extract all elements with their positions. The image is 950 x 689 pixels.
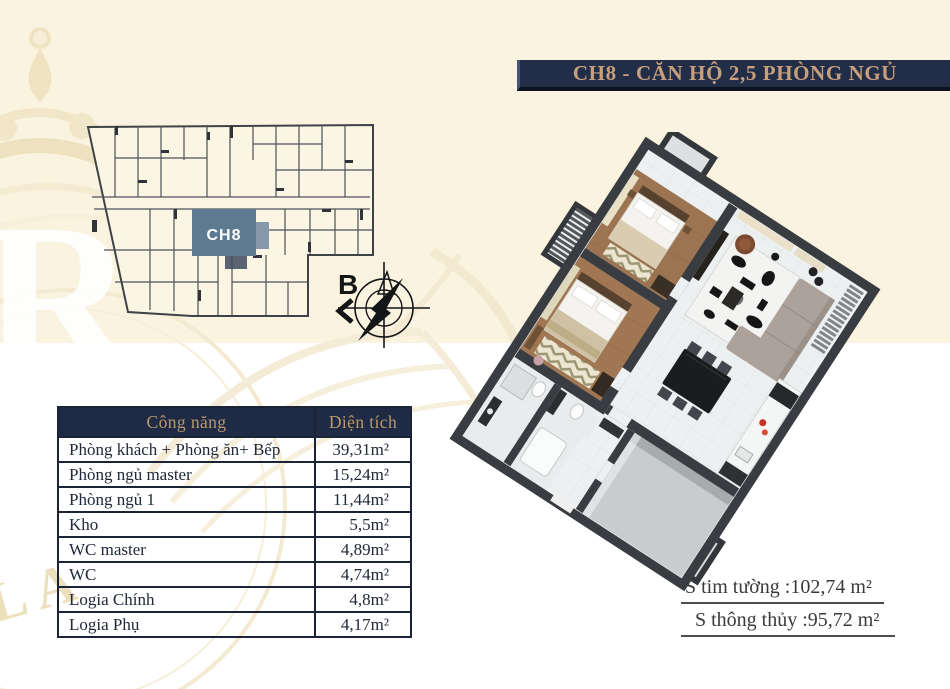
table-row: WC master4,89m² bbox=[58, 537, 411, 562]
room-name-cell: Logia Phụ bbox=[58, 612, 315, 637]
table-row: Phòng ngủ master15,24m² bbox=[58, 462, 411, 487]
title-banner: CH8 - CĂN HỘ 2,5 PHÒNG NGỦ bbox=[517, 60, 950, 91]
room-area-cell: 4,89m² bbox=[315, 537, 411, 562]
brochure-page: R LA CH8 - CĂN HỘ 2,5 PHÒNG NGỦ bbox=[0, 0, 950, 689]
north-arrow-icon bbox=[339, 300, 352, 322]
table-row: Phòng khách + Phòng ăn+ Bếp39,31m² bbox=[58, 437, 411, 462]
room-area-cell: 39,31m² bbox=[315, 437, 411, 462]
room-area-cell: 11,44m² bbox=[315, 487, 411, 512]
area-table-body: Phòng khách + Phòng ăn+ Bếp39,31m²Phòng … bbox=[58, 437, 411, 637]
room-area-cell: 5,5m² bbox=[315, 512, 411, 537]
gross-area-line: S tim tường :102,74 m² bbox=[681, 575, 884, 604]
table-header-row: Công năng Diện tích bbox=[58, 407, 411, 437]
net-area-line: S thông thủy :95,72 m² bbox=[681, 608, 895, 637]
room-name-cell: Phòng ngủ 1 bbox=[58, 487, 315, 512]
room-area-cell: 15,24m² bbox=[315, 462, 411, 487]
table-row: Logia Phụ4,17m² bbox=[58, 612, 411, 637]
table-row: WC4,74m² bbox=[58, 562, 411, 587]
floorplan-3d bbox=[430, 132, 900, 612]
room-name-cell: WC bbox=[58, 562, 315, 587]
room-name-cell: Kho bbox=[58, 512, 315, 537]
col-header-area: Diện tích bbox=[315, 407, 411, 437]
unit-label: CH8 bbox=[206, 227, 241, 244]
table-row: Kho5,5m² bbox=[58, 512, 411, 537]
room-area-cell: 4,74m² bbox=[315, 562, 411, 587]
north-label: B bbox=[338, 269, 358, 300]
area-summary: S tim tường :102,74 m² S thông thủy :95,… bbox=[681, 575, 895, 641]
room-area-cell: 4,17m² bbox=[315, 612, 411, 637]
table-row: Logia Chính4,8m² bbox=[58, 587, 411, 612]
room-name-cell: WC master bbox=[58, 537, 315, 562]
room-name-cell: Phòng khách + Phòng ăn+ Bếp bbox=[58, 437, 315, 462]
room-name-cell: Phòng ngủ master bbox=[58, 462, 315, 487]
area-table: Công năng Diện tích Phòng khách + Phòng … bbox=[57, 406, 412, 638]
compass: B bbox=[326, 256, 431, 351]
room-area-cell: 4,8m² bbox=[315, 587, 411, 612]
col-header-function: Công năng bbox=[58, 407, 315, 437]
page-title: CH8 - CĂN HỘ 2,5 PHÒNG NGỦ bbox=[573, 61, 897, 86]
room-name-cell: Logia Chính bbox=[58, 587, 315, 612]
table-row: Phòng ngủ 111,44m² bbox=[58, 487, 411, 512]
